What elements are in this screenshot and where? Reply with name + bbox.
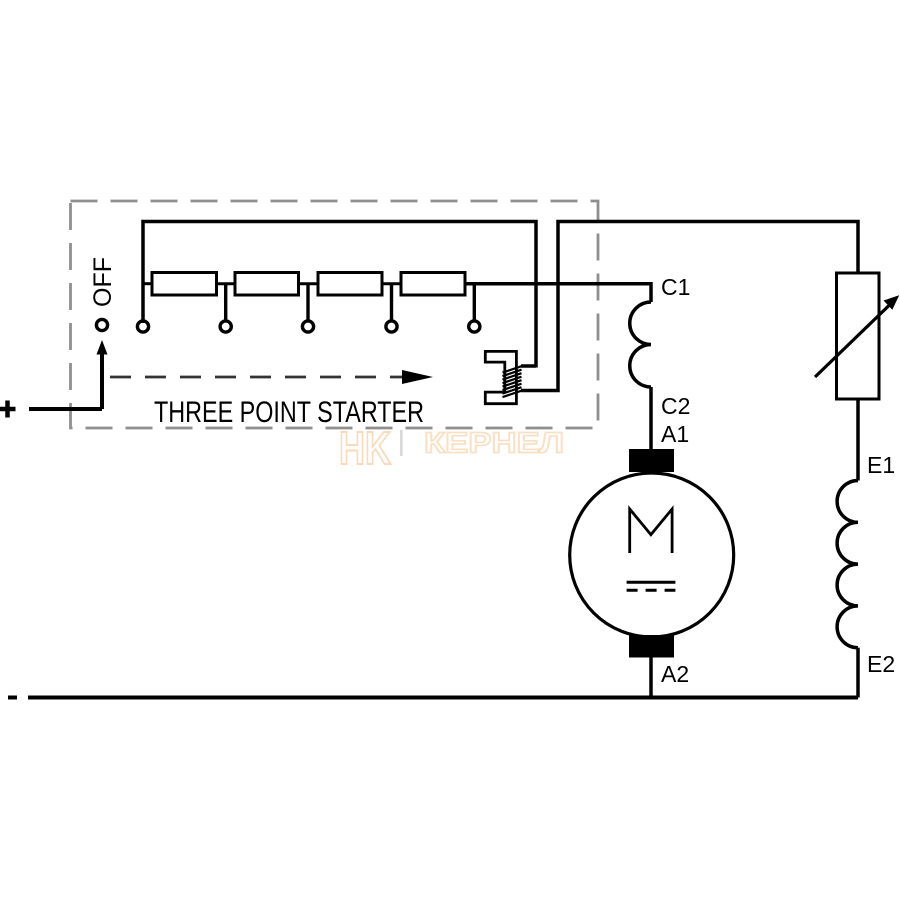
svg-text:A2: A2: [661, 661, 689, 687]
svg-text:E1: E1: [867, 452, 895, 478]
svg-text:THREE POINT STARTER: THREE POINT STARTER: [154, 396, 424, 429]
svg-text:C1: C1: [661, 274, 690, 300]
svg-text:C2: C2: [661, 393, 690, 419]
svg-text:A1: A1: [661, 421, 689, 447]
svg-text:E2: E2: [867, 651, 895, 677]
svg-text:КЕРНЕЛ: КЕРНЕЛ: [424, 428, 564, 460]
svg-text:HK: HK: [339, 422, 391, 474]
svg-text:OFF: OFF: [89, 257, 117, 307]
